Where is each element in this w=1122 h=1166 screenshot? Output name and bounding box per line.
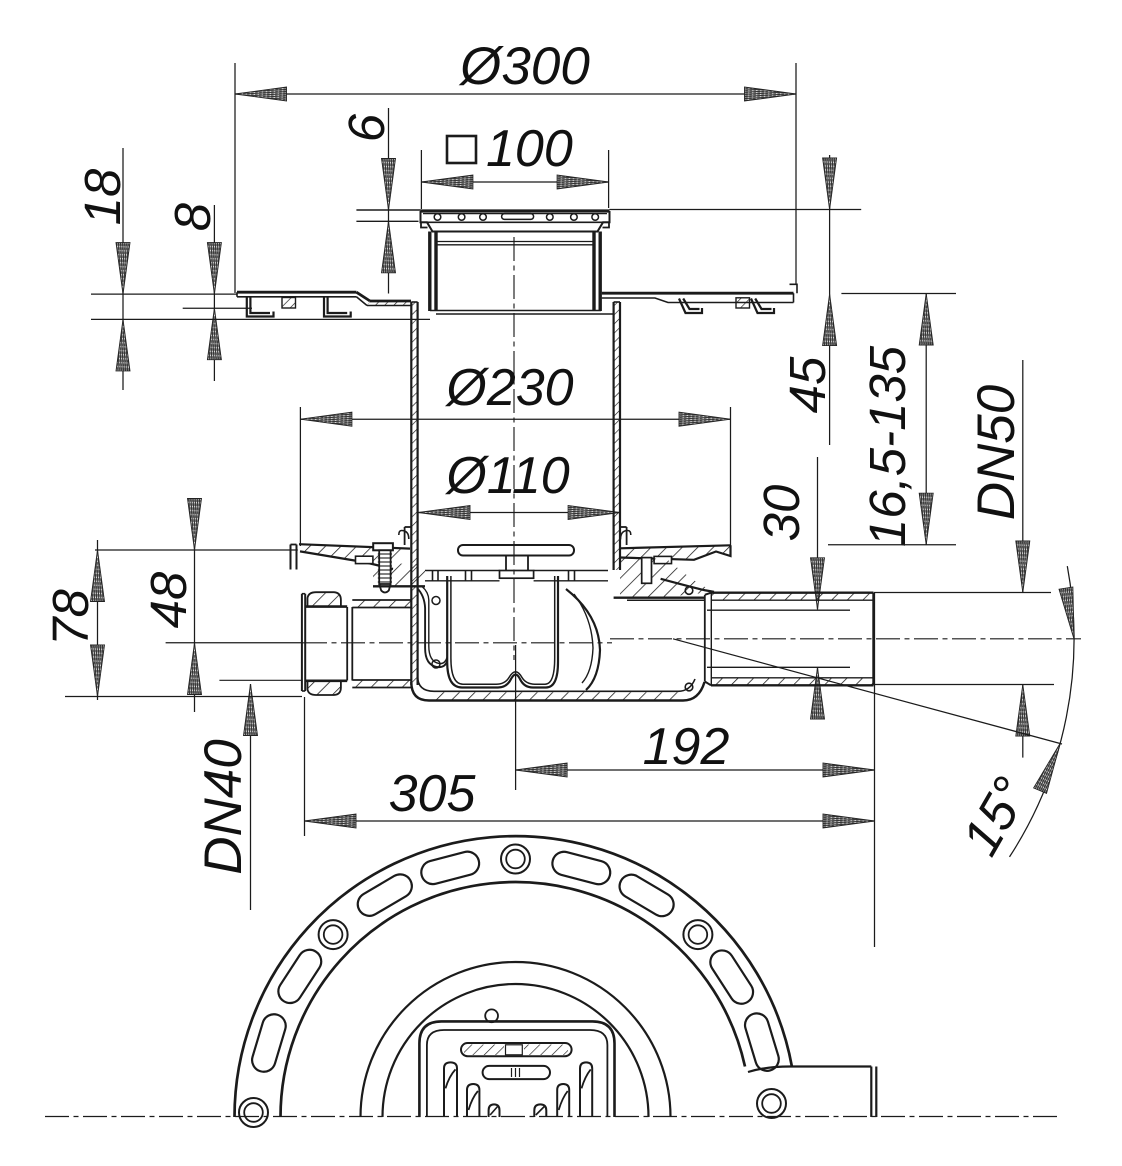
svg-text:Ø230: Ø230 bbox=[444, 359, 573, 417]
svg-text:30: 30 bbox=[753, 485, 810, 542]
svg-text:78: 78 bbox=[42, 589, 99, 646]
svg-text:305: 305 bbox=[389, 765, 477, 823]
svg-text:8: 8 bbox=[164, 202, 221, 231]
svg-text:100: 100 bbox=[486, 120, 573, 178]
svg-text:16,5-135: 16,5-135 bbox=[859, 345, 916, 547]
svg-text:6: 6 bbox=[338, 113, 395, 142]
svg-text:DN40: DN40 bbox=[194, 739, 253, 875]
svg-text:45: 45 bbox=[779, 356, 836, 413]
svg-text:DN50: DN50 bbox=[967, 384, 1026, 520]
svg-text:192: 192 bbox=[643, 718, 730, 776]
svg-text:Ø300: Ø300 bbox=[458, 37, 590, 96]
svg-text:Ø110: Ø110 bbox=[444, 447, 569, 505]
svg-text:48: 48 bbox=[140, 571, 197, 628]
